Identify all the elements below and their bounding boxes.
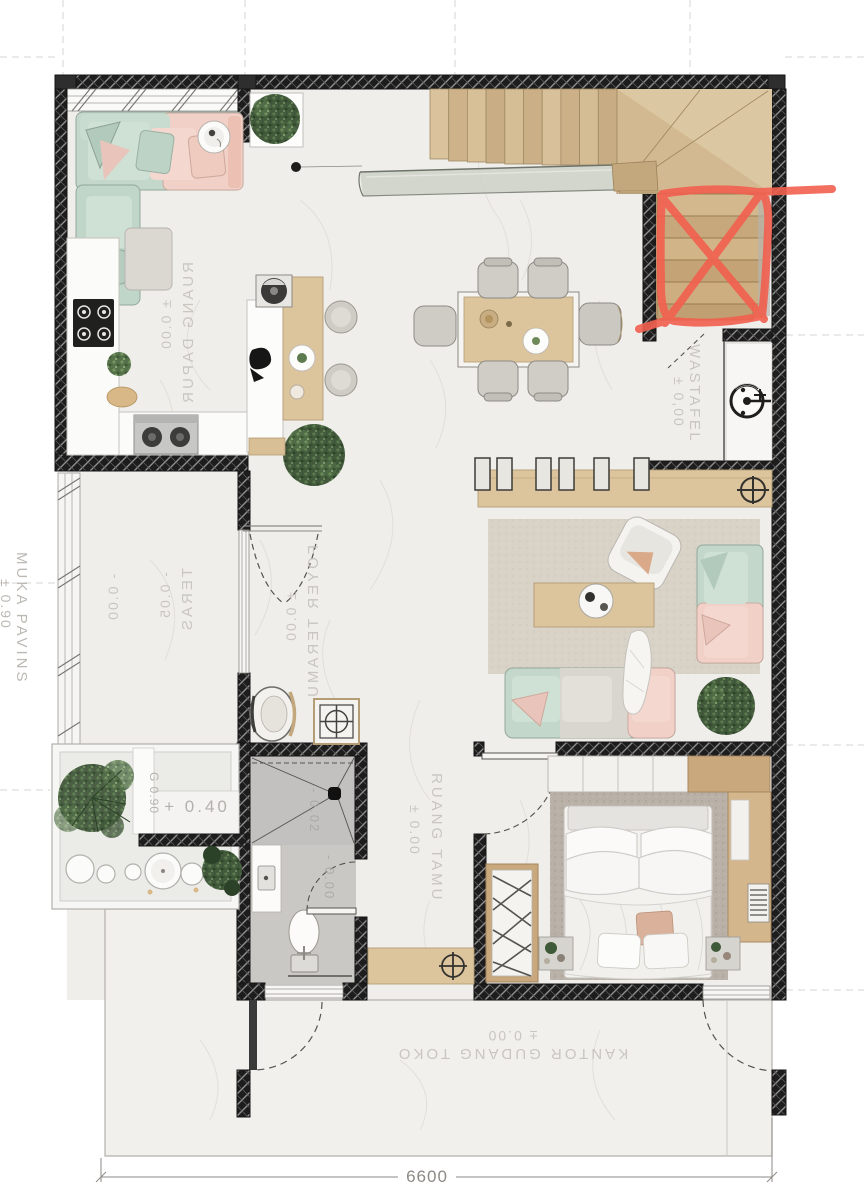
svg-text:- 0.05: - 0.05 xyxy=(157,572,173,620)
svg-text:+ 0.40: + 0.40 xyxy=(164,797,230,816)
svg-text:± 0.00: ± 0.00 xyxy=(407,805,423,856)
svg-text:± 0.00: ± 0.00 xyxy=(283,592,299,643)
svg-text:- 0.00: - 0.00 xyxy=(105,574,121,622)
svg-text:FOYER TERAMU: FOYER TERAMU xyxy=(305,545,322,700)
svg-text:± 0.00: ± 0.00 xyxy=(158,300,174,351)
svg-text:- 0.00: - 0.00 xyxy=(322,855,337,900)
svg-text:WASTAFEL: WASTAFEL xyxy=(686,344,703,443)
svg-text:MUKA PAVINS: MUKA PAVINS xyxy=(13,552,30,684)
svg-text:± 0.90: ± 0.90 xyxy=(0,579,14,630)
svg-text:- 0.02: - 0.02 xyxy=(307,788,322,833)
svg-text:TERAS: TERAS xyxy=(179,568,196,633)
svg-text:6600: 6600 xyxy=(406,1167,448,1184)
svg-text:RUANG DAPUR: RUANG DAPUR xyxy=(180,262,197,406)
svg-text:± 0.00: ± 0.00 xyxy=(487,1028,538,1044)
svg-text:± 0,00: ± 0,00 xyxy=(671,377,687,428)
svg-text:KANTOR GUDANG TOKO: KANTOR GUDANG TOKO xyxy=(396,1045,628,1062)
svg-text:RUANG TAMU: RUANG TAMU xyxy=(428,773,445,902)
svg-text:G 0.90: G 0.90 xyxy=(147,772,161,814)
